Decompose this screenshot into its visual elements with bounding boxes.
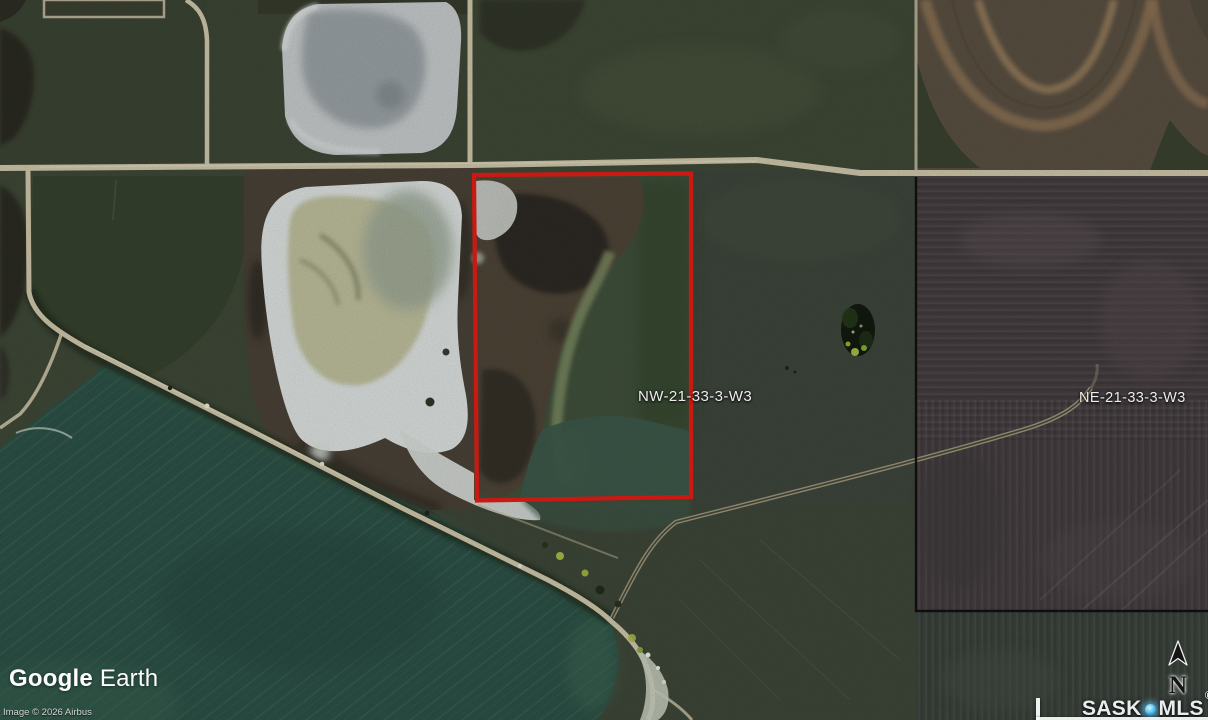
north-arrow-icon [1167, 640, 1189, 667]
satellite-map-view: NW-21-33-3-W3 NE-21-33-3-W3 GoogleEarth … [0, 0, 1208, 720]
parcel-label-nw: NW-21-33-3-W3 [638, 388, 752, 405]
north-arrow: N [1160, 640, 1196, 698]
parcel-label-ne: NE-21-33-3-W3 [1079, 390, 1186, 406]
watermark-frame-line [1036, 717, 1208, 720]
google-earth-word1: Google [9, 665, 93, 692]
satellite-imagery [0, 0, 1208, 720]
google-earth-logo: GoogleEarth [9, 665, 158, 693]
imagery-copyright: Image © 2026 Airbus [3, 707, 92, 718]
map-pin-icon [1145, 704, 1156, 715]
north-label: N [1160, 673, 1196, 698]
google-earth-word2: Earth [100, 665, 158, 692]
image-grain [0, 0, 1208, 720]
